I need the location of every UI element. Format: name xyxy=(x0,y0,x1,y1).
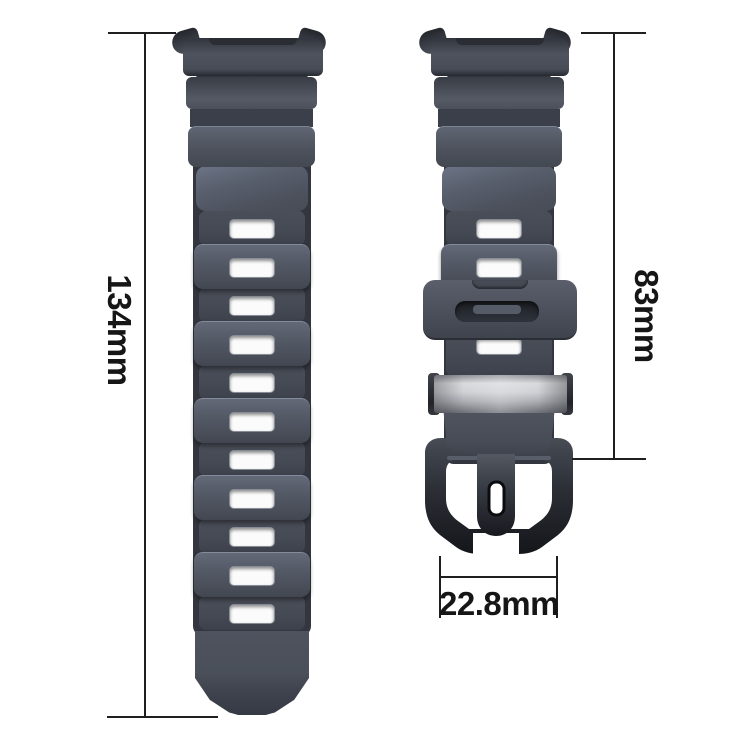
dim-tick-83-bottom xyxy=(572,458,646,460)
band-hole xyxy=(476,219,522,239)
band-hole xyxy=(229,412,275,432)
band-hole xyxy=(229,450,275,470)
band-segment xyxy=(436,126,562,167)
band-segment xyxy=(199,442,305,476)
buckle xyxy=(425,438,573,558)
band-segment xyxy=(186,77,317,109)
left-band-tip xyxy=(195,631,309,715)
lug-notch xyxy=(456,38,544,45)
right-band-lug xyxy=(431,38,569,76)
band-segment xyxy=(196,166,308,211)
band-end-over-buckle xyxy=(440,412,558,454)
band-hole xyxy=(476,258,522,278)
band-hole xyxy=(229,335,275,355)
dim-line-134-vertical xyxy=(144,33,146,718)
band-segment xyxy=(194,321,310,366)
band-hole xyxy=(229,527,275,547)
dim-label-right-length: 83mm xyxy=(627,269,665,362)
dim-label-band-width: 22.8mm xyxy=(439,585,559,623)
band-segment xyxy=(194,475,310,520)
left-band-lug xyxy=(183,38,323,76)
keeper-notch xyxy=(472,280,528,289)
band-hole xyxy=(229,219,275,239)
dim-tick-134-top xyxy=(108,32,176,34)
band-segment xyxy=(194,244,310,289)
dim-tick-134-bottom xyxy=(107,716,218,718)
dim-line-width-horizontal xyxy=(440,576,557,578)
slider-sheen xyxy=(434,375,567,413)
band-segment xyxy=(194,398,310,443)
dim-tick-83-top xyxy=(581,32,646,34)
keeper-slot xyxy=(455,301,539,322)
buckle-bottom-gap xyxy=(473,533,519,558)
band-hole xyxy=(476,338,522,355)
band-segment xyxy=(190,109,313,127)
keeper-slot-strap xyxy=(473,305,521,314)
band-segment xyxy=(194,552,310,597)
band-segment xyxy=(442,166,556,211)
metal-slider xyxy=(434,375,567,413)
lug-notch xyxy=(209,38,297,45)
band-segment xyxy=(199,288,305,322)
band-segment xyxy=(199,365,305,399)
product-image-canvas: 134mm 83mm 22.8mm xyxy=(0,0,750,750)
keeper-loop xyxy=(423,280,577,340)
dim-line-83-vertical xyxy=(613,33,615,460)
band-segment xyxy=(188,126,315,167)
band-hole xyxy=(229,296,275,316)
band-segment xyxy=(199,596,305,630)
band-segment xyxy=(438,109,560,127)
band-segment xyxy=(434,77,564,109)
band-hole xyxy=(229,258,275,278)
band-hole xyxy=(229,489,275,509)
band-hole xyxy=(229,604,275,624)
buckle-tongue-slot xyxy=(489,482,504,515)
band-segment xyxy=(446,211,552,245)
band-segment xyxy=(199,519,305,553)
dim-label-left-length: 134mm xyxy=(100,274,138,385)
band-segment xyxy=(199,211,305,245)
band-hole xyxy=(229,566,275,586)
band-hole xyxy=(229,373,275,393)
